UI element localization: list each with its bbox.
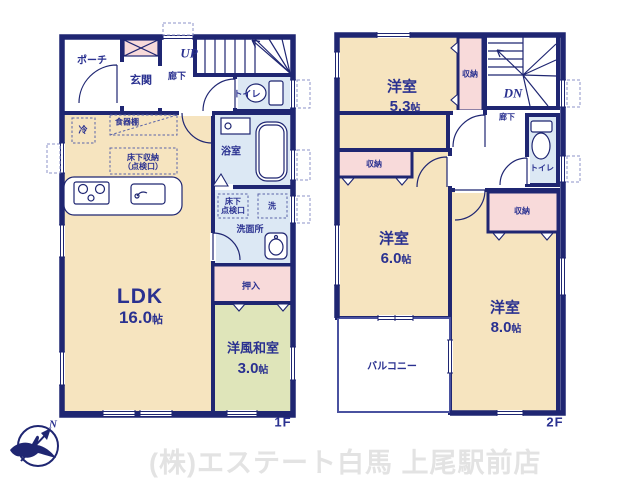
floorplan-drawing [0,0,640,480]
label-closet-c: 収納 [514,206,530,215]
label-washitsu-size: 3.0帖 [238,360,269,378]
label-ldk-size: 16.0帖 [119,308,163,328]
vanity-sink-icon [265,233,287,259]
label-toilet-2f: トイレ [530,163,554,172]
label-hallway-2f: 廊下 [499,112,515,121]
label-underfloor-storage-line1: 床下収納 [123,153,163,162]
floor1-tag: 1F [274,416,291,431]
label-room60: 洋室 [379,230,409,247]
label-room80: 洋室 [490,299,520,316]
bird-icon [10,436,56,458]
company-watermark: (株)エステート白馬 上尾駅前店 [149,441,541,480]
door-gap [447,156,453,186]
door-gap [157,66,163,108]
room60-size-unit: 帖 [401,255,411,266]
compass-logo [10,426,58,466]
label-up: UP [180,47,197,62]
label-balcony: バルコニー [367,361,417,373]
label-toilet-1f: トイレ [233,89,260,99]
door-gap [179,110,212,116]
label-underfloor-storage-line2: （点検口） [123,162,163,171]
label-room80-size: 8.0帖 [491,319,522,337]
label-bath: 浴室 [221,146,241,158]
label-room60-size: 6.0帖 [381,250,412,268]
ldk-size-unit: 帖 [152,314,163,326]
room53-size-value: 5.3 [390,98,411,115]
label-oshiire: 押入 [242,281,260,291]
door-gap [119,62,125,106]
label-closet-b: 収納 [366,159,382,168]
room60-size-value: 6.0 [381,250,402,267]
label-ldk: LDK [117,285,163,309]
label-closet-a: 収納 [462,69,478,78]
label-dn: DN [504,87,523,102]
label-underfloor-hatch: 床下 点検口 [221,197,245,215]
room80-size-unit: 帖 [511,324,521,335]
label-fridge: 冷 [78,125,87,135]
floor2-plan [334,32,580,416]
label-washroom: 洗面所 [236,224,263,234]
floor2-tag: 2F [546,416,563,431]
label-room53-size: 5.3帖 [390,98,421,116]
north-label: N [49,419,57,432]
washitsu-size-value: 3.0 [238,360,259,377]
room80-size-value: 8.0 [491,319,512,336]
label-underfloor-storage: 床下収納 （点検口） [123,153,163,171]
label-washitsu: 洋風和室 [227,342,279,357]
label-underfloor-hatch-line2: 点検口 [221,206,245,215]
label-hallway-1f: 廊下 [168,71,186,81]
label-laundry: 洗 [268,201,276,210]
staircase-1f-box [195,37,293,75]
floorplan-page: ポーチ 玄関 UP 廊下 トイレ 冷 食器棚 床下収納 （点検口） 浴室 床下 … [0,0,640,480]
label-cupboard: 食器棚 [115,117,139,126]
label-underfloor-hatch-line1: 床下 [221,197,245,206]
room53-lower [337,113,448,150]
label-genkan: 玄関 [130,75,152,88]
eave-marks-2f [567,80,580,182]
label-room53: 洋室 [387,78,417,95]
toilet-icon-2f [531,121,552,159]
shoe-cabinet-icon [124,40,158,56]
ldk-size-value: 16.0 [119,308,152,327]
room53-size-unit: 帖 [410,103,420,114]
washitsu-room [213,303,293,413]
floor1-plan [47,23,310,416]
kitchen-counter [64,177,182,215]
label-porch: ポーチ [77,55,107,67]
washitsu-size-unit: 帖 [258,365,268,376]
